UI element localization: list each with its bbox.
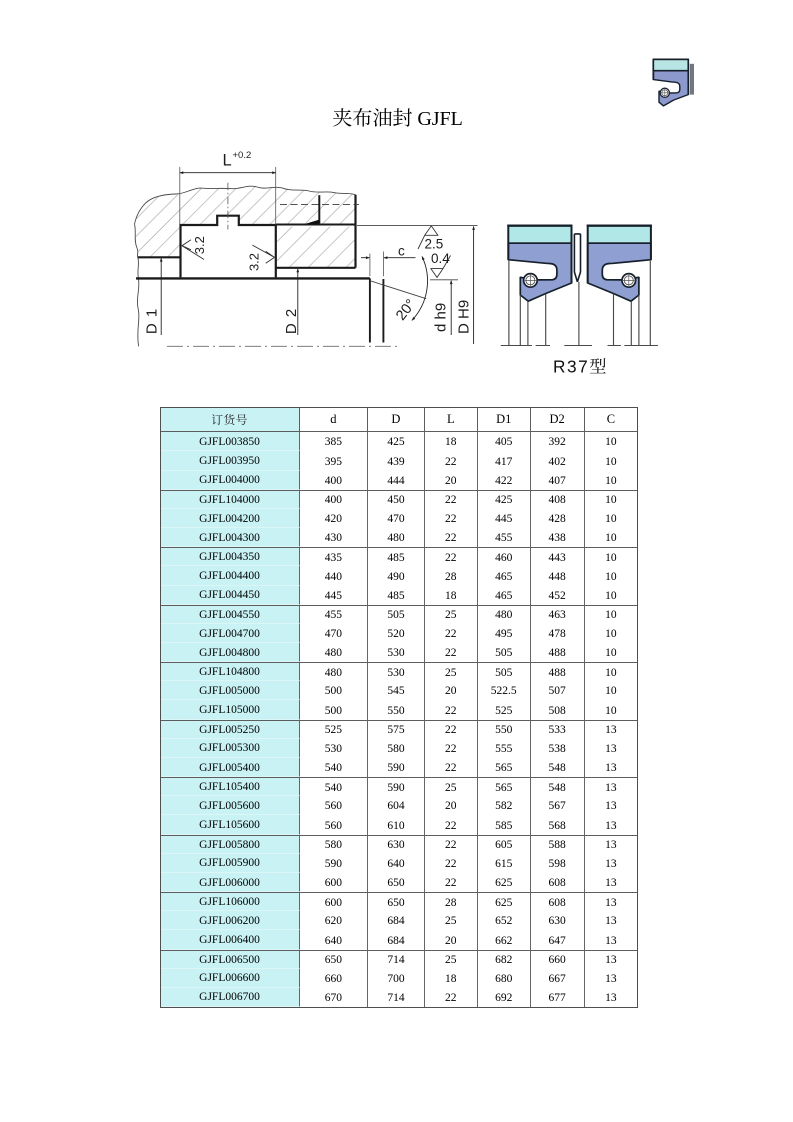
svg-text:D 2: D 2 — [283, 308, 300, 334]
svg-text:R37型: R37型 — [553, 356, 608, 376]
svg-text:L: L — [223, 152, 232, 170]
svg-text:0.4: 0.4 — [431, 251, 450, 266]
svg-text:3.2: 3.2 — [246, 253, 261, 271]
svg-text:+0.2: +0.2 — [233, 150, 252, 161]
svg-text:3.2: 3.2 — [192, 236, 207, 254]
svg-text:D 1: D 1 — [143, 308, 160, 334]
svg-text:D H9: D H9 — [456, 300, 473, 334]
svg-text:20°: 20° — [393, 297, 419, 324]
svg-text:d h9: d h9 — [432, 303, 449, 332]
svg-text:2.5: 2.5 — [425, 237, 444, 252]
svg-text:c: c — [398, 244, 405, 259]
